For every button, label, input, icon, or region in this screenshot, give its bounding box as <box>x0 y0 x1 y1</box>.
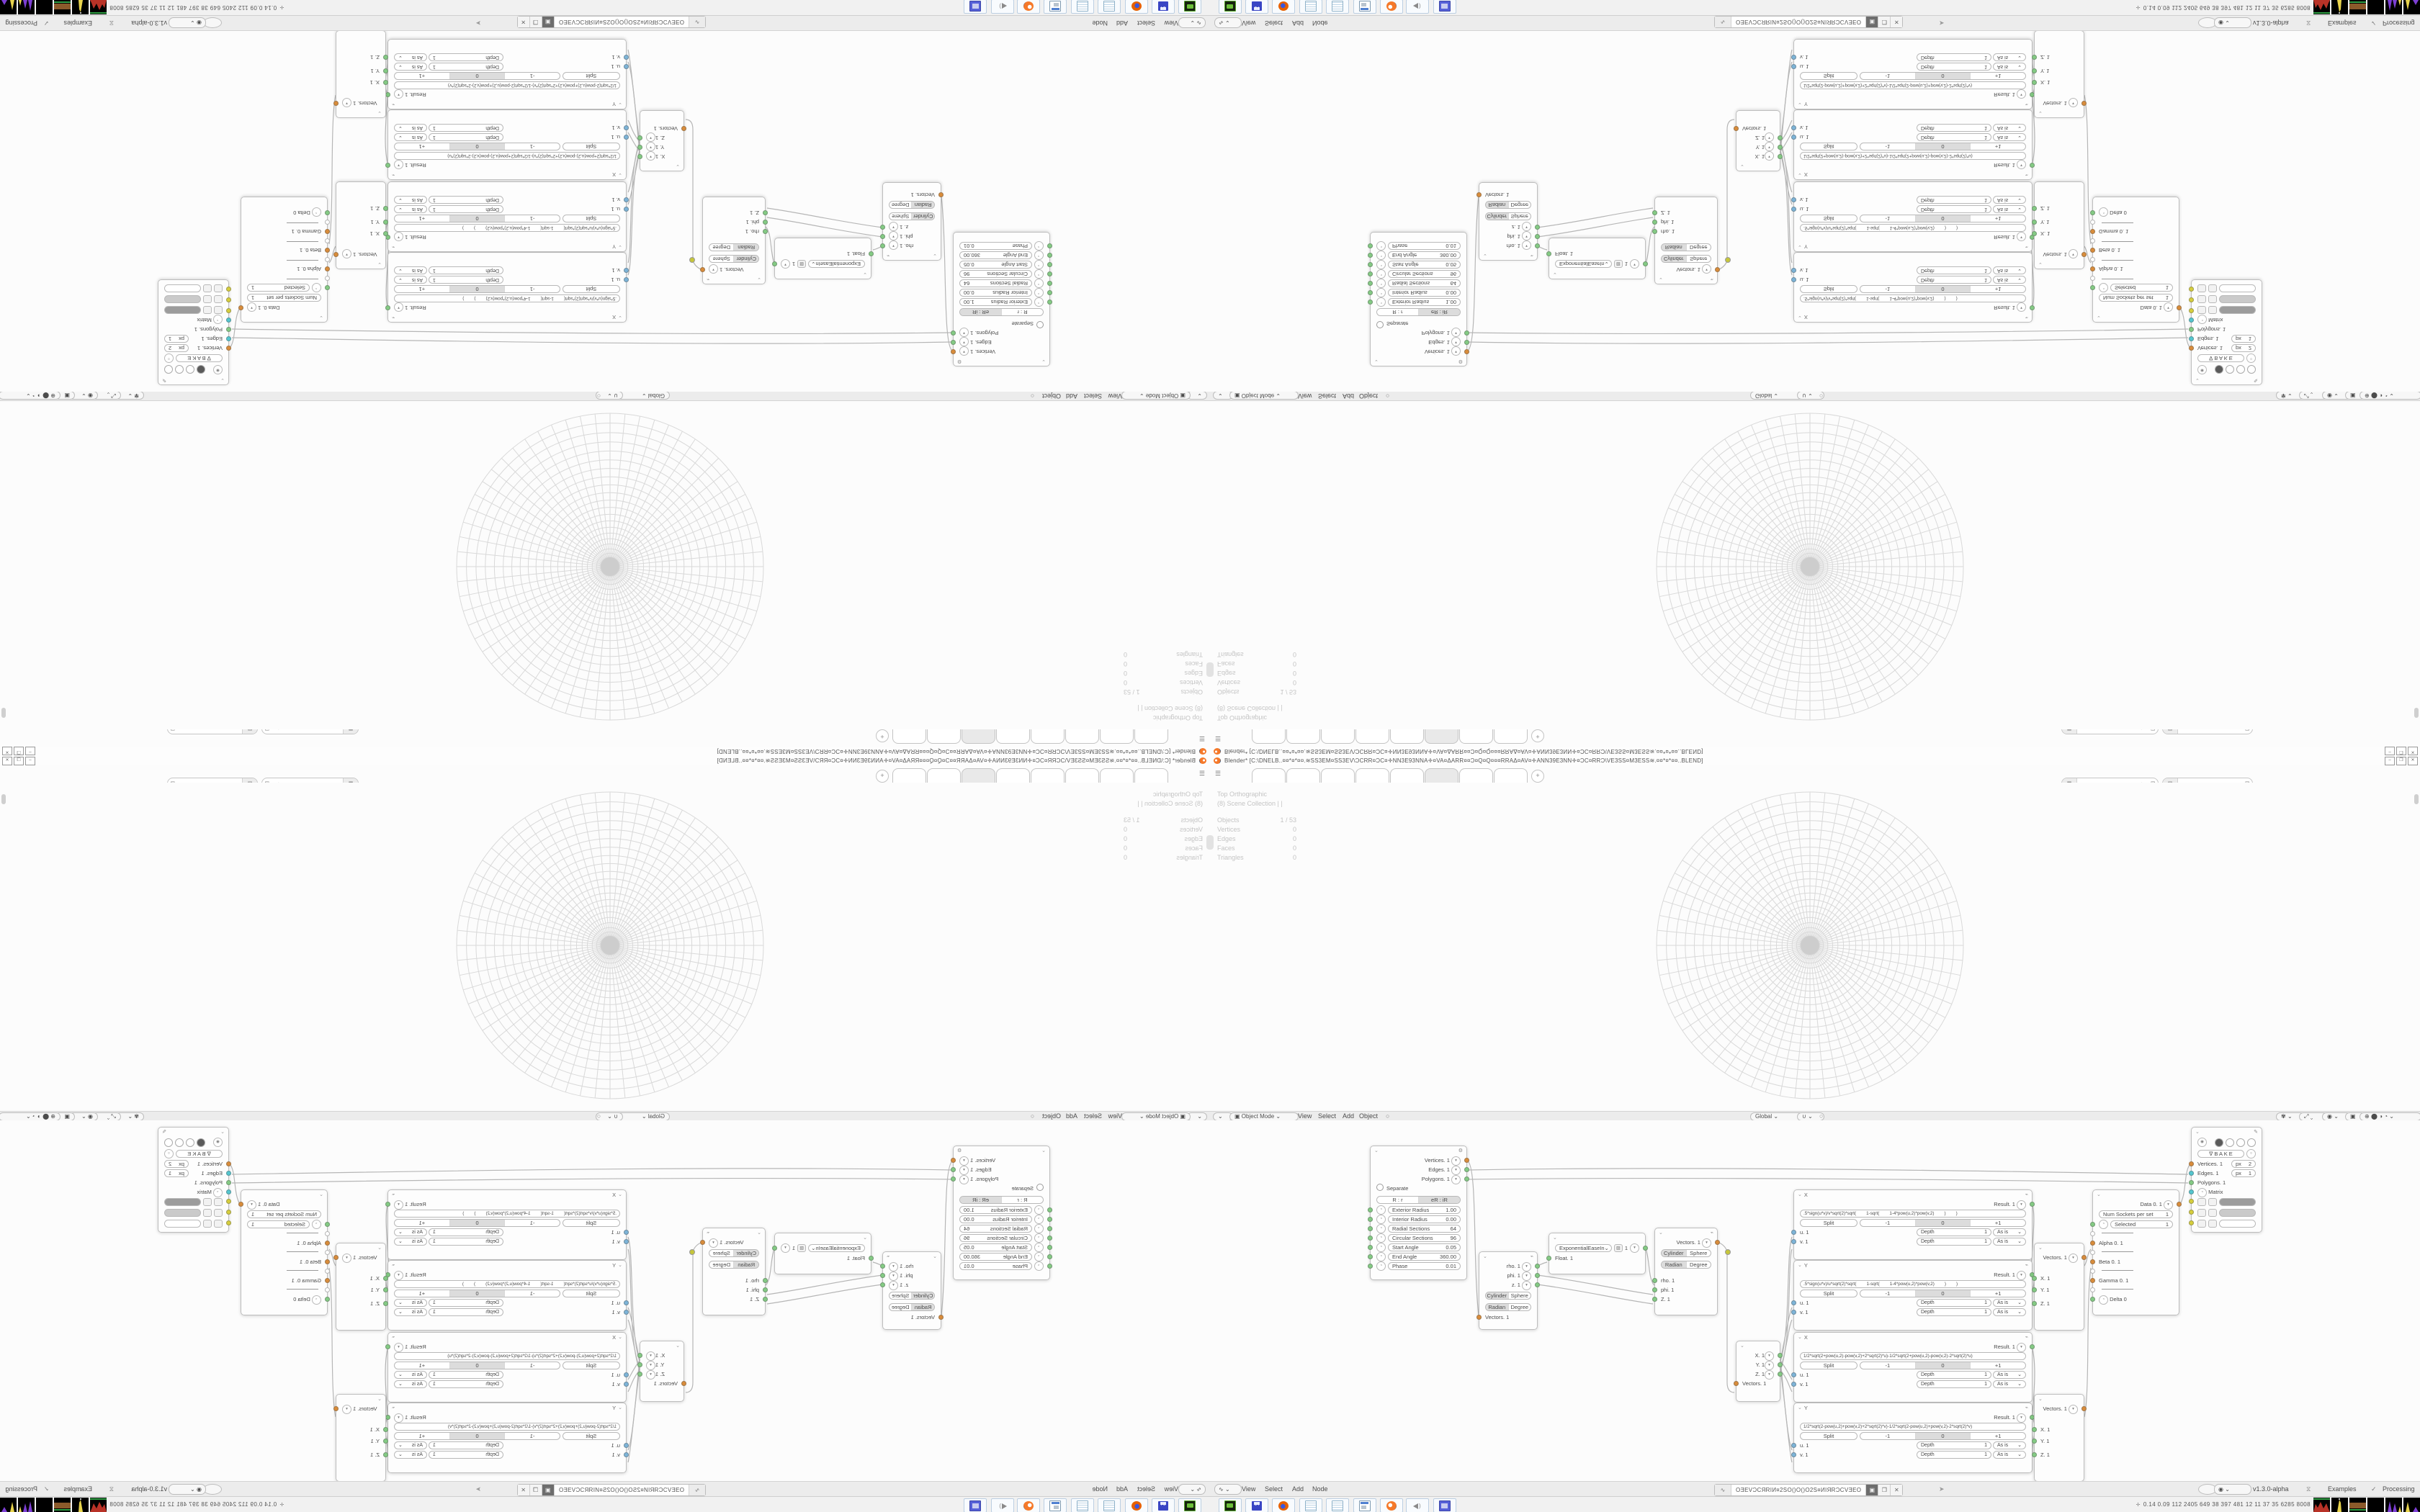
display-toggle-3[interactable] <box>175 1138 184 1147</box>
socket[interactable] <box>1368 262 1373 267</box>
param-end-angle[interactable]: ◔End Angle360.00 <box>954 1252 1049 1261</box>
socket[interactable] <box>880 1282 885 1287</box>
wrap-segmented[interactable]: -10+1 <box>394 1432 560 1440</box>
socket[interactable] <box>869 1256 874 1261</box>
socket[interactable] <box>2090 229 2095 234</box>
3d-viewport[interactable]: Top Orthographic (8) Scene Collection | … <box>1210 783 2420 1111</box>
param-interior-radius[interactable]: ◔Interior Radius0.00 <box>954 288 1049 297</box>
socket[interactable] <box>226 327 231 332</box>
close-button[interactable]: ✕ <box>2 747 12 755</box>
socket[interactable] <box>1535 225 1540 230</box>
socket[interactable] <box>763 1287 768 1292</box>
socket[interactable] <box>681 126 686 131</box>
socket[interactable] <box>2032 1276 2037 1281</box>
workspace-tab-4[interactable] <box>1031 768 1065 783</box>
menu-add[interactable]: Add <box>1292 1482 1304 1497</box>
workspace-tab-1[interactable] <box>1134 768 1168 783</box>
formula-field[interactable]: 1/2*sqrt(2-pow(u,2)+pow(v,2)+2*sqrt(2)*v… <box>394 1423 620 1431</box>
vector-polar-input-node[interactable]: ⌄⌁ Vectors. 1 ▾ CylinderSphere RadianDeg… <box>702 197 766 284</box>
socket[interactable] <box>2090 1259 2095 1264</box>
socket[interactable] <box>383 1439 388 1444</box>
socket[interactable] <box>1778 154 1783 159</box>
taskbar-console-icon[interactable] <box>1219 1498 1242 1512</box>
split-button[interactable]: Split <box>563 1432 620 1440</box>
socket[interactable] <box>383 1427 388 1432</box>
face-color-swatch[interactable] <box>2219 284 2256 292</box>
depth-field[interactable]: Depth1 <box>1917 196 1991 204</box>
socket[interactable] <box>325 1231 330 1236</box>
workspace-tab-1[interactable] <box>1252 729 1286 744</box>
param-start-angle[interactable]: ◔Start Angle0.05 <box>954 260 1049 269</box>
face-color-swatch[interactable] <box>2219 1220 2256 1228</box>
socket[interactable] <box>2090 1269 2095 1274</box>
formula-field[interactable]: .5*sign(u*v)/u*sqrt(2)*sqrt(1-sqrt(1-4*p… <box>1800 224 2026 232</box>
menu-object[interactable]: Object <box>1359 391 1378 400</box>
socket[interactable] <box>2032 80 2037 85</box>
vertex-color-icon2[interactable] <box>2208 306 2217 314</box>
point-size-field[interactable]: px2 <box>2231 344 2256 352</box>
mode-dropdown[interactable]: ▣ Object Mode ⌄ <box>1229 391 1299 400</box>
param-circular-sections[interactable]: ◔Circular Sections96 <box>1371 269 1466 279</box>
workspace-tab-7[interactable] <box>1459 768 1493 783</box>
formula-field[interactable]: .5*sign(u*v)/v*sqrt(2)*sqrt(1-sqrt(1-4*p… <box>1800 1210 2026 1218</box>
depth-field[interactable]: Depth1 <box>429 1228 503 1236</box>
depth-field[interactable]: Depth1 <box>1917 1441 1991 1449</box>
socket[interactable] <box>637 1372 642 1377</box>
mode-dropdown[interactable]: As is⌄ <box>1993 276 2026 284</box>
socket[interactable] <box>1791 207 1796 212</box>
formula-node-y2[interactable]: ⌄Y⌁ Result. 1 ▾ 1/2*sqrt(2-pow(u,2)+pow(… <box>1793 39 2033 109</box>
maximize-button[interactable]: ❐ <box>2396 747 2406 755</box>
split-button[interactable]: Split <box>563 72 620 80</box>
face-color-icon[interactable] <box>2197 284 2206 292</box>
formula-node-x2[interactable]: ⌄X⌁ Result. 1 ▾ 1/2*sqrt(2+pow(u,2)-pow(… <box>387 1332 627 1403</box>
socket[interactable] <box>2032 1287 2037 1292</box>
formula-node-y1[interactable]: ⌄Y⌁ Result. 1 ▾ .5*sign(u*v)/u*sqrt(2)*s… <box>1793 181 2033 252</box>
depth-field[interactable]: Depth1 <box>1917 63 1991 71</box>
separate-checkbox[interactable]: Separate <box>1371 1184 1466 1194</box>
taskbar-media-player-icon[interactable] <box>964 0 987 14</box>
wrap-segmented[interactable]: -10+1 <box>394 1219 560 1227</box>
tool-circle-icon[interactable]: ○ <box>1386 391 1389 400</box>
socket[interactable] <box>2032 231 2037 236</box>
socket[interactable] <box>383 220 388 225</box>
socket[interactable] <box>2090 1297 2095 1302</box>
mode-dropdown[interactable]: As is⌄ <box>394 266 427 274</box>
vector-in-node-2[interactable]: ⌄ Vectors. 1 ▾ X. 1 Y. 1 Z. 1 <box>336 31 386 118</box>
menu-add[interactable]: Add <box>1116 15 1128 30</box>
socket[interactable] <box>1464 1176 1469 1182</box>
formula-field[interactable]: .5*sign(u*v)/u*sqrt(2)*sqrt(1-sqrt(1-4*p… <box>1800 1280 2026 1288</box>
param-start-angle[interactable]: ◔Start Angle0.05 <box>1371 260 1466 269</box>
display-toggle-2[interactable] <box>186 1138 194 1147</box>
taskbar-firefox-icon[interactable] <box>1125 1498 1148 1512</box>
socket[interactable] <box>385 1344 390 1349</box>
param-exterior-radius[interactable]: ◔Exterior Radius1.00 <box>954 1205 1049 1215</box>
workspace-tab-5[interactable] <box>996 768 1030 783</box>
split-button[interactable]: Split <box>563 1362 620 1369</box>
formula-node-y1[interactable]: ⌄Y⌁ Result. 1 ▾ .5*sign(u*v)/u*sqrt(2)*s… <box>387 1260 627 1331</box>
edge-color-swatch[interactable] <box>2219 1209 2256 1217</box>
cylinder-node[interactable]: ⌄⚙ Vertices. 1 ▾ Edges. 1 ▾ Polygons. 1 … <box>953 1146 1050 1280</box>
socket[interactable] <box>2189 308 2194 313</box>
socket[interactable] <box>1464 1167 1469 1172</box>
formula-field[interactable]: 1/2*sqrt(2+pow(u,2)-pow(v,2)+2*sqrt(2)*u… <box>1800 1352 2026 1360</box>
socket[interactable] <box>2032 68 2037 73</box>
socket[interactable] <box>1652 1287 1657 1292</box>
socket[interactable] <box>624 1382 629 1387</box>
socket[interactable] <box>1535 234 1540 239</box>
socket[interactable] <box>624 1230 629 1235</box>
vertex-color-swatch[interactable] <box>164 1198 201 1206</box>
depth-field[interactable]: Depth1 <box>429 196 503 204</box>
mode-dropdown[interactable]: As is⌄ <box>1993 133 2026 141</box>
easing-mode-dropdown[interactable]: ExponentialEaseIn⌄ <box>1555 260 1612 268</box>
mode-dropdown[interactable]: As is⌄ <box>394 1299 427 1307</box>
socket[interactable] <box>1368 281 1373 286</box>
socket[interactable] <box>2189 327 2194 332</box>
socket[interactable] <box>2032 220 2037 225</box>
viewport-scroll-nub[interactable] <box>2414 794 2419 804</box>
socket[interactable] <box>325 1287 330 1292</box>
formula-field[interactable]: .5*sign(u*v)/u*sqrt(2)*sqrt(1-sqrt(1-4*p… <box>394 224 620 232</box>
vector-polar-output-node[interactable]: ⌄⌁ rho. 1 ▾ phi. 1 ▾ z. 1 ▾ CylinderSphe… <box>1479 182 1538 261</box>
socket[interactable] <box>624 1239 629 1244</box>
edge-color-icon2[interactable] <box>203 295 212 303</box>
depth-field[interactable]: Depth1 <box>429 133 503 141</box>
cylinder-node[interactable]: ⌄⚙ Vertices. 1 ▾ Edges. 1 ▾ Polygons. 1 … <box>1370 232 1467 366</box>
coords-segmented[interactable]: CylinderSphere <box>1661 1249 1711 1257</box>
socket[interactable] <box>325 1241 330 1246</box>
close-button[interactable]: ✕ <box>2 757 12 765</box>
socket[interactable] <box>325 257 330 262</box>
socket[interactable] <box>1791 1372 1796 1377</box>
num-sockets-field[interactable]: Num Sockets per set1 <box>247 1210 321 1218</box>
orientation-dropdown[interactable]: Global ⌄ <box>1750 391 1803 400</box>
socket[interactable] <box>1368 1226 1373 1231</box>
easing-mode-dropdown[interactable]: ExponentialEaseIn⌄ <box>808 1244 865 1252</box>
minimize-button[interactable]: ‒ <box>2385 757 2395 765</box>
vertex-color-swatch[interactable] <box>164 306 201 314</box>
depth-field[interactable]: Depth1 <box>429 266 503 274</box>
socket[interactable] <box>1464 330 1469 336</box>
socket[interactable] <box>385 92 390 97</box>
socket[interactable] <box>325 266 330 271</box>
param-start-angle[interactable]: ◔Start Angle0.05 <box>954 1243 1049 1252</box>
socket[interactable] <box>383 55 388 60</box>
menu-view[interactable]: View <box>1298 391 1312 400</box>
mode-dropdown[interactable]: As is⌄ <box>1993 1441 2026 1449</box>
num-sockets-field[interactable]: Num Sockets per set1 <box>2099 294 2173 302</box>
input-switch-node[interactable]: ⌄ Data 0. 1 ▾ Num Sockets per set1 ◔Sele… <box>241 197 328 323</box>
viewport-scroll-nub[interactable] <box>1 794 6 804</box>
workspace-tab-8[interactable] <box>892 729 926 744</box>
socket[interactable] <box>226 1161 231 1166</box>
socket[interactable] <box>637 1362 642 1367</box>
taskbar-floppy64-icon[interactable]: 64 <box>1245 0 1268 14</box>
socket[interactable] <box>624 1372 629 1377</box>
socket[interactable] <box>383 68 388 73</box>
pin-icon[interactable]: ➤ <box>475 1482 481 1497</box>
socket[interactable] <box>938 1315 944 1320</box>
coords-segmented[interactable]: CylinderSphere <box>709 1249 759 1257</box>
toolbar-collapse-handle[interactable] <box>1210 662 1214 677</box>
vector-in-node-2[interactable]: ⌄ Vectors. 1 ▾ X. 1 Y. 1 Z. 1 <box>336 1394 386 1481</box>
sverchok-node-editor[interactable]: ⌄⚙ Vertices. 1 ▾ Edges. 1 ▾ Polygons. 1 … <box>0 1120 1210 1481</box>
workspace-tab-7[interactable] <box>927 729 961 744</box>
workspace-tab-3[interactable] <box>1321 729 1355 744</box>
mode-dropdown[interactable]: As is⌄ <box>394 63 427 71</box>
socket[interactable] <box>1791 64 1796 69</box>
display-toggle-1[interactable] <box>2215 366 2223 374</box>
socket[interactable] <box>325 276 330 281</box>
sverchok-node-editor[interactable]: ⌄⚙ Vertices. 1 ▾ Edges. 1 ▾ Polygons. 1 … <box>1210 31 2420 392</box>
depth-field[interactable]: Depth1 <box>1917 53 1991 61</box>
workspace-tab-5[interactable] <box>996 729 1030 744</box>
workspace-tab-3[interactable] <box>1321 768 1355 783</box>
socket[interactable] <box>1047 271 1052 276</box>
tree-name[interactable]: OƎEVƆCЯRIИ¤2SO()O()O2S¤ИIЯRƆCVƎEO <box>555 19 689 25</box>
taskbar-blender-icon[interactable] <box>1380 1498 1403 1512</box>
socket[interactable] <box>2032 1452 2037 1457</box>
socket[interactable] <box>763 210 768 215</box>
mode-dropdown[interactable]: As is⌄ <box>1993 196 2026 204</box>
socket[interactable] <box>325 1297 330 1302</box>
workspace-tab-5[interactable] <box>1390 768 1424 783</box>
socket[interactable] <box>1047 1264 1052 1269</box>
socket[interactable] <box>383 206 388 211</box>
workspace-tab-6-active[interactable] <box>962 729 995 744</box>
examples-menu[interactable]: Examples <box>63 15 92 30</box>
wrap-segmented[interactable]: -10+1 <box>1860 1362 2026 1369</box>
socket[interactable] <box>226 1220 231 1225</box>
socket[interactable] <box>2030 1202 2035 1207</box>
formula-field[interactable]: .5*sign(u*v)/u*sqrt(2)*sqrt(1-sqrt(1-4*p… <box>394 1280 620 1288</box>
wrap-segmented[interactable]: -10+1 <box>394 215 560 222</box>
socket[interactable] <box>325 238 330 243</box>
face-color-icon[interactable] <box>214 284 223 292</box>
tree-name[interactable]: OƎEVƆCЯRIИ¤2SO()O()O2S¤ИIЯRƆCVƎEO <box>1731 19 1865 25</box>
examples-menu[interactable]: Examples <box>2328 15 2357 30</box>
socket[interactable] <box>2090 276 2095 281</box>
taskbar-volume-icon[interactable]: ) <box>991 1498 1014 1512</box>
edge-color-swatch[interactable] <box>164 295 201 303</box>
show-toggle[interactable]: ◉ <box>213 365 223 374</box>
depth-field[interactable]: Depth1 <box>1917 266 1991 274</box>
bake-button[interactable]: ∇ B A K E <box>176 355 223 363</box>
socket[interactable] <box>2189 1180 2194 1185</box>
face-color-icon2[interactable] <box>203 1220 212 1228</box>
easing-mode-dropdown[interactable]: ExponentialEaseIn⌄ <box>1555 1244 1612 1252</box>
socket[interactable] <box>1643 1246 1648 1251</box>
radius-mode-segmented[interactable]: R : reR : iR <box>959 308 1044 316</box>
menu-object[interactable]: Object <box>1042 391 1061 400</box>
mode-dropdown[interactable]: As is⌄ <box>394 1238 427 1246</box>
shading-mode-group[interactable]: ⊕ ⬤ ◑ ◔ ⌄ <box>2359 391 2420 400</box>
socket[interactable] <box>1047 1207 1052 1212</box>
vector-in-node-2[interactable]: ⌄ Vectors. 1 ▾ X. 1 Y. 1 Z. 1 <box>2034 31 2084 118</box>
display-toggle-3[interactable] <box>2236 366 2245 374</box>
close-button[interactable]: ✕ <box>2408 747 2418 755</box>
angle-unit-segmented[interactable]: RadianDegree <box>889 202 935 210</box>
workspace-tab-4[interactable] <box>1355 768 1389 783</box>
socket[interactable] <box>637 145 642 150</box>
mode-dropdown[interactable]: As is⌄ <box>394 1228 427 1236</box>
num-sockets-field[interactable]: Num Sockets per set1 <box>247 294 321 302</box>
menu-select[interactable]: Select <box>1137 15 1155 30</box>
socket[interactable] <box>763 1278 768 1283</box>
mode-dropdown[interactable]: As is⌄ <box>394 53 427 61</box>
socket[interactable] <box>2032 206 2037 211</box>
socket[interactable] <box>1791 135 1796 140</box>
workspace-tab-8[interactable] <box>1494 729 1528 744</box>
show-toggle[interactable]: ◉ <box>2197 365 2207 374</box>
param-phase[interactable]: ◔Phase0.01 <box>954 1261 1049 1271</box>
angle-unit-segmented[interactable]: RadianDegree <box>1661 244 1711 252</box>
socket[interactable] <box>1368 1236 1373 1241</box>
mode-dropdown[interactable]: As is⌄ <box>394 1441 427 1449</box>
formula-field[interactable]: .5*sign(u*v)/v*sqrt(2)*sqrt(1-sqrt(1-4*p… <box>394 1210 620 1218</box>
angle-unit-segmented[interactable]: RadianDegree <box>889 1303 935 1311</box>
param-circular-sections[interactable]: ◔Circular Sections96 <box>954 269 1049 279</box>
param-exterior-radius[interactable]: ◔Exterior Radius1.00 <box>1371 297 1466 307</box>
depth-field[interactable]: Depth1 <box>429 124 503 132</box>
edge-width-field[interactable]: px1 <box>2231 1169 2256 1177</box>
depth-field[interactable]: Depth1 <box>1917 276 1991 284</box>
vertex-color-swatch[interactable] <box>2219 1198 2256 1206</box>
workspace-tab-4[interactable] <box>1355 729 1389 744</box>
param-exterior-radius[interactable]: ◔Exterior Radius1.00 <box>954 297 1049 307</box>
angle-unit-segmented[interactable]: RadianDegree <box>709 1261 759 1269</box>
socket[interactable] <box>2032 1301 2037 1306</box>
vector-polar-input-node[interactable]: ⌄⌁ Vectors. 1 ▾ CylinderSphere RadianDeg… <box>702 1228 766 1315</box>
split-button[interactable]: Split <box>1800 1219 1857 1227</box>
taskbar-console-icon[interactable] <box>1178 1498 1201 1512</box>
socket[interactable] <box>624 1452 629 1457</box>
socket[interactable] <box>624 207 629 212</box>
socket[interactable] <box>226 1171 231 1176</box>
vertex-color-icon2[interactable] <box>203 1198 212 1206</box>
angle-unit-segmented[interactable]: RadianDegree <box>709 244 759 252</box>
socket[interactable] <box>2189 346 2194 351</box>
split-button[interactable]: Split <box>1800 285 1857 293</box>
depth-field[interactable]: Depth1 <box>1917 1371 1991 1379</box>
menu-node[interactable]: Node <box>1312 15 1328 30</box>
socket[interactable] <box>2030 305 2035 310</box>
socket[interactable] <box>1535 1264 1540 1269</box>
socket[interactable] <box>1464 340 1469 345</box>
socket[interactable] <box>880 234 885 239</box>
wrap-segmented[interactable]: -10+1 <box>1860 143 2026 150</box>
socket[interactable] <box>383 1301 388 1306</box>
taskbar-image-viewer-icon[interactable] <box>1353 0 1376 14</box>
taskbar-notepad-icon-2[interactable] <box>1326 0 1349 14</box>
taskbar-volume-icon[interactable]: ) <box>991 0 1014 14</box>
socket[interactable] <box>1791 268 1796 273</box>
taskbar-media-player-icon[interactable] <box>964 1498 987 1512</box>
snap-dropdown[interactable]: ◉ ⌄ <box>2214 17 2251 28</box>
socket[interactable] <box>1368 1254 1373 1259</box>
socket[interactable] <box>1047 1226 1052 1231</box>
socket[interactable] <box>325 1259 330 1264</box>
socket[interactable] <box>880 1264 885 1269</box>
taskbar-floppy64-icon[interactable]: 64 <box>1152 0 1175 14</box>
add-workspace-button[interactable]: + <box>876 729 889 742</box>
depth-field[interactable]: Depth1 <box>1917 133 1991 141</box>
processing-toggle[interactable]: Processing <box>5 1482 37 1497</box>
param-phase[interactable]: ◔Phase0.01 <box>954 241 1049 251</box>
socket[interactable] <box>1652 1297 1657 1302</box>
socket[interactable] <box>700 1240 705 1245</box>
edge-color-icon2[interactable] <box>2208 1209 2217 1217</box>
menu-select[interactable]: Select <box>1137 1482 1155 1497</box>
socket[interactable] <box>951 1167 956 1172</box>
vector-in-node-1[interactable]: ⌄ Vectors. 1 ▾ X. 1 Y. 1 Z. 1 <box>336 1243 386 1331</box>
workspace-tab-2[interactable] <box>1286 768 1320 783</box>
socket[interactable] <box>1778 1372 1783 1377</box>
selected-field[interactable]: ◔Selected1 <box>2093 1220 2179 1229</box>
socket[interactable] <box>1791 1382 1796 1387</box>
socket[interactable] <box>2177 305 2182 310</box>
wrap-segmented[interactable]: -10+1 <box>394 143 560 150</box>
socket[interactable] <box>624 64 629 69</box>
mode-dropdown[interactable]: As is⌄ <box>1993 1451 2026 1459</box>
display-toggle-1[interactable] <box>2215 1138 2223 1147</box>
input-switch-node[interactable]: ⌄ Data 0. 1 ▾ Num Sockets per set1 ◔Sele… <box>2092 1189 2179 1315</box>
socket[interactable] <box>880 1273 885 1278</box>
minimize-button[interactable]: ‒ <box>2385 747 2395 755</box>
copy-tree-button[interactable]: ❐ <box>1878 1485 1890 1495</box>
socket[interactable] <box>325 1222 330 1227</box>
easing-node[interactable]: ⌄ ExponentialEaseIn⌄ ▨ 1 ▾ Float. 1 <box>774 238 871 279</box>
input-switch-node[interactable]: ⌄ Data 0. 1 ▾ Num Sockets per set1 ◔Sele… <box>241 1189 328 1315</box>
taskbar-floppy64-icon[interactable]: 64 <box>1245 1498 1268 1512</box>
socket[interactable] <box>2090 210 2095 215</box>
edge-color-swatch[interactable] <box>2219 295 2256 303</box>
socket[interactable] <box>1791 277 1796 282</box>
socket[interactable] <box>238 305 243 310</box>
input-switch-node[interactable]: ⌄ Data 0. 1 ▾ Num Sockets per set1 ◔Sele… <box>2092 197 2179 323</box>
clear-bake-button[interactable]: ○ <box>164 1149 174 1158</box>
socket[interactable] <box>1368 1264 1373 1269</box>
formula-node-y2[interactable]: ⌄Y⌁ Result. 1 ▾ 1/2*sqrt(2-pow(u,2)+pow(… <box>387 1403 627 1473</box>
param-radial-sections[interactable]: ◔Radial Sections64 <box>1371 1224 1466 1233</box>
split-button[interactable]: Split <box>1800 1432 1857 1440</box>
socket[interactable] <box>2090 1250 2095 1255</box>
menu-view[interactable]: View <box>1242 1482 1255 1497</box>
workspace-tab-3[interactable] <box>1065 729 1099 744</box>
depth-field[interactable]: Depth1 <box>1917 1308 1991 1316</box>
socket[interactable] <box>2090 266 2095 271</box>
display-toggle-2[interactable] <box>2226 366 2234 374</box>
socket[interactable] <box>1546 251 1551 256</box>
wrap-segmented[interactable]: -10+1 <box>1860 1290 2026 1297</box>
vector-polar-output-node[interactable]: ⌄⌁ rho. 1 ▾ phi. 1 ▾ z. 1 ▾ CylinderSphe… <box>882 182 941 261</box>
vector-in-node-1[interactable]: ⌄ Vectors. 1 ▾ X. 1 Y. 1 Z. 1 <box>336 181 386 269</box>
socket[interactable] <box>1791 197 1796 202</box>
mode-dropdown[interactable]: As is⌄ <box>1993 53 2026 61</box>
wrap-segmented[interactable]: -10+1 <box>1860 1432 2026 1440</box>
formula-field[interactable]: .5*sign(u*v)/v*sqrt(2)*sqrt(1-sqrt(1-4*p… <box>394 294 620 302</box>
coords-segmented[interactable]: CylinderSphere <box>889 213 935 221</box>
formula-field[interactable]: .5*sign(u*v)/v*sqrt(2)*sqrt(1-sqrt(1-4*p… <box>1800 294 2026 302</box>
maximize-button[interactable]: ❐ <box>2396 757 2406 765</box>
taskbar-media-player-icon[interactable] <box>1433 1498 1456 1512</box>
separate-checkbox[interactable]: Separate <box>1371 318 1466 328</box>
socket[interactable] <box>637 154 642 159</box>
editor-type-dropdown[interactable]: ∿ ⌄ <box>1214 1484 1242 1495</box>
socket[interactable] <box>1368 300 1373 305</box>
